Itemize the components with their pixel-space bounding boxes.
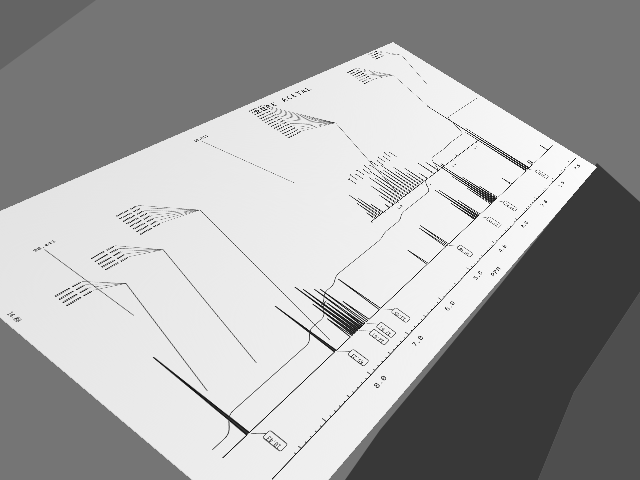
corner-shade xyxy=(0,0,96,70)
scene: PURE ACETAL PPM 8.07.06.05.04.03.02.01.0… xyxy=(0,0,640,480)
